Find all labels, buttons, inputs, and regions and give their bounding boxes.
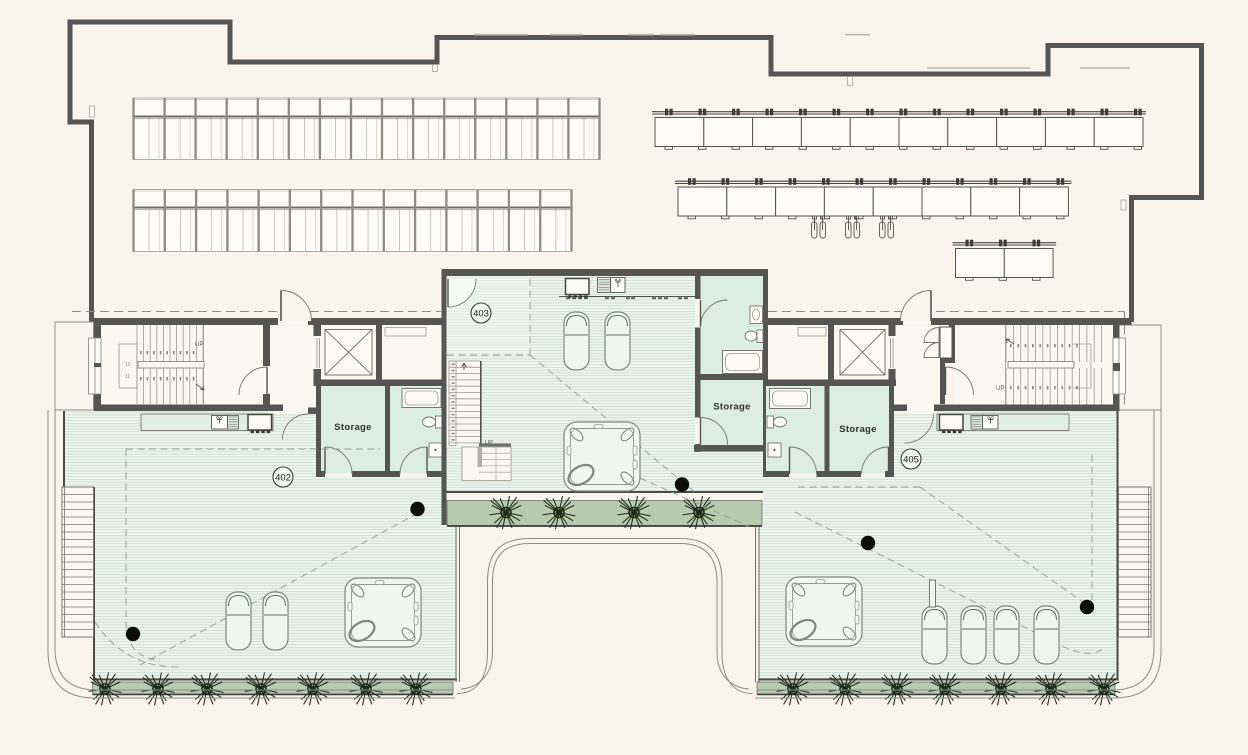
svg-text:Storage: Storage xyxy=(839,424,876,435)
svg-text:UP: UP xyxy=(195,342,203,348)
svg-text:403: 403 xyxy=(473,309,489,320)
svg-text:402: 402 xyxy=(275,473,291,484)
svg-text:Storage: Storage xyxy=(713,402,750,413)
svg-text:UP: UP xyxy=(485,440,493,446)
svg-text:Storage: Storage xyxy=(334,422,371,433)
svg-text:405: 405 xyxy=(903,455,919,466)
svg-text:11: 11 xyxy=(125,374,130,380)
svg-text:UP: UP xyxy=(996,386,1004,392)
svg-text:10: 10 xyxy=(125,362,131,368)
